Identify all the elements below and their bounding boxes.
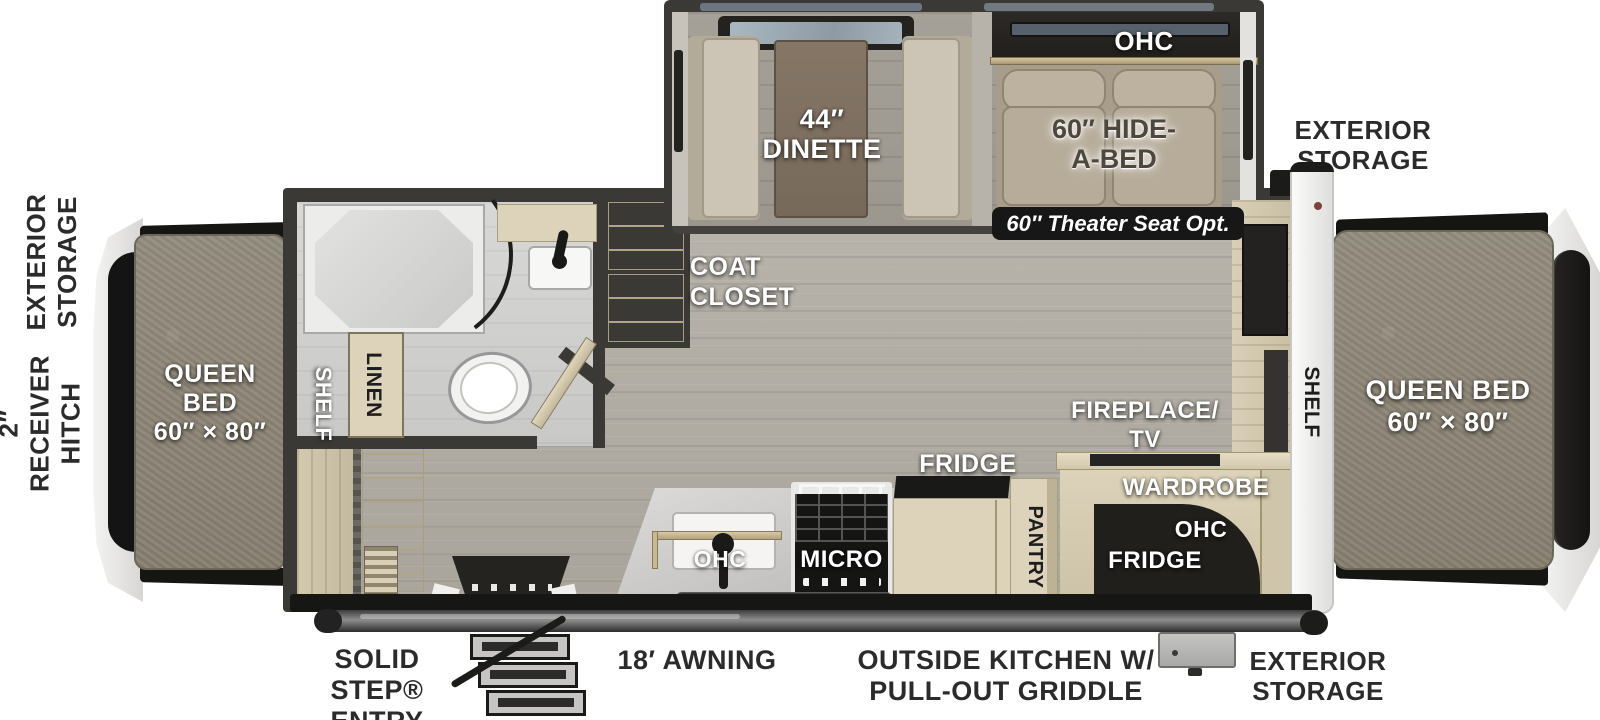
cooktop <box>795 494 888 542</box>
coat-closet-line1: COAT <box>690 252 810 282</box>
linen-text: LINEN <box>362 352 385 418</box>
rear-pillar-cap <box>1290 162 1334 172</box>
outside-kitchen-label: OUTSIDE KITCHEN W/ PULL-OUT GRIDDLE <box>856 645 1156 707</box>
bed-step-vent <box>364 546 398 594</box>
hide-a-bed-line2: A-BED <box>1024 144 1204 174</box>
hide-a-bed-line1: 60″ HIDE- <box>1024 114 1204 144</box>
underbody-storage-foot <box>1188 668 1202 676</box>
bedroom-fridge-text: FRIDGE <box>1108 547 1202 574</box>
bedroom-ohc-text: OHC <box>1175 516 1228 542</box>
slideout-divider-wall <box>972 12 992 226</box>
solid-step-line2: ENTRY <box>286 706 468 720</box>
rear-queen-bed-label: QUEEN BED 60″ × 80″ <box>1338 374 1558 438</box>
solid-step-line1: SOLID STEP® <box>286 644 468 706</box>
front-queen-bed-label: QUEEN BED 60″ × 80″ <box>134 360 286 447</box>
front-exterior-storage-line2: STORAGE <box>52 177 83 347</box>
range-knobs <box>803 578 881 586</box>
dinette-text: DINETTE <box>752 134 892 164</box>
kitchen-fridge-label: FRIDGE <box>908 450 1028 479</box>
awning-bar-cap-left <box>314 609 342 633</box>
fireplace-line1: FIREPLACE/ <box>1060 396 1230 425</box>
underbody-storage-screw <box>1172 650 1178 656</box>
sofa-back-cushion-left <box>1002 69 1106 111</box>
dinette-side-window <box>674 50 683 152</box>
wardrobe-counter-slab <box>1090 454 1220 466</box>
curtain-rod <box>990 57 1258 65</box>
rear-bed-line1: QUEEN BED <box>1338 374 1558 406</box>
fireplace-line2: TV <box>1060 425 1230 454</box>
dinette-size-text: 44″ <box>752 104 892 134</box>
solid-step-entry-label: SOLID STEP® ENTRY <box>286 644 468 720</box>
entry-step-dots <box>472 584 552 591</box>
coat-closet-label: COAT CLOSET <box>690 252 810 312</box>
dinette-bench-right-seat <box>902 38 960 218</box>
rear-top-storage-line1: EXTERIOR <box>1278 115 1448 145</box>
micro-label: MICRO <box>791 546 892 574</box>
bedroom-fridge-label: FRIDGE <box>1100 547 1210 575</box>
front-bed-line1: QUEEN <box>134 360 286 389</box>
front-bed-line3: 60″ × 80″ <box>134 418 286 447</box>
outside-kitchen-line1: OUTSIDE KITCHEN W/ <box>856 645 1156 676</box>
slideout-ohc-text: OHC <box>1114 26 1173 56</box>
entry-step-2-tread <box>490 670 566 679</box>
awning-roller-highlight <box>360 614 740 619</box>
hitch-line1: 2″ <box>0 349 25 499</box>
hitch-line3: HITCH <box>56 349 87 499</box>
pantry-label: PANTRY <box>1024 487 1046 607</box>
front-exterior-storage-line1: EXTERIOR <box>21 177 52 347</box>
rear-shelf-text: SHELF <box>1300 366 1323 437</box>
awning-text: 18′ AWNING <box>618 645 777 675</box>
fireplace-lower-slot <box>1264 350 1288 458</box>
theater-seat-badge: 60″ Theater Seat Opt. <box>992 207 1244 240</box>
sofa-back-cushion-right <box>1112 69 1216 111</box>
theater-seat-badge-text: 60″ Theater Seat Opt. <box>1006 211 1229 237</box>
slideout-right-window <box>1243 60 1253 160</box>
fireplace-tv-label: FIREPLACE/ TV <box>1060 396 1230 454</box>
hide-a-bed-label: 60″ HIDE- A-BED <box>1024 114 1204 174</box>
micro-text: MICRO <box>800 546 883 573</box>
slideout-top-window-right <box>984 3 1214 11</box>
bathroom-vanity <box>497 204 597 242</box>
wardrobe-text: WARDROBE <box>1123 474 1270 501</box>
rear-bottom-storage-line2: STORAGE <box>1233 676 1403 706</box>
front-shelf-text: SHELF <box>311 367 336 442</box>
front-exterior-storage-label: EXTERIOR STORAGE <box>21 177 83 347</box>
floorplan-canvas: EXTERIOR STORAGE 2″ RECEIVER HITCH QUEEN… <box>0 0 1600 720</box>
fridge-door-seam <box>995 500 997 596</box>
fireplace-tv-inset <box>1242 224 1288 336</box>
kitchen-ohc-rail-bracket <box>652 531 658 569</box>
receiver-hitch-label: 2″ RECEIVER HITCH <box>0 349 87 499</box>
outside-kitchen-line2: PULL-OUT GRIDDLE <box>856 676 1156 707</box>
front-bed-line2: BED <box>134 389 286 418</box>
kitchen-ohc-text: OHC <box>694 546 747 572</box>
fridge-top <box>894 476 1011 500</box>
rear-bed-line2: 60″ × 80″ <box>1338 406 1558 438</box>
linen-label: LINEN <box>363 335 385 435</box>
awning-bar-cap-right <box>1300 611 1328 635</box>
bathroom-faucet-head <box>552 254 567 269</box>
bedroom-ohc-label: OHC <box>1156 516 1246 543</box>
rear-shelf-label: SHELF <box>1301 352 1323 452</box>
rear-pillar-rivet <box>1314 202 1322 210</box>
dinette-label: 44″ DINETTE <box>752 104 892 164</box>
slideout-top-window-left <box>700 3 922 11</box>
hitch-line2: RECEIVER <box>25 349 56 499</box>
rear-bottom-exterior-storage-label: EXTERIOR STORAGE <box>1233 646 1403 706</box>
fridge-body <box>893 498 1011 598</box>
front-shelf-label: SHELF <box>314 349 336 459</box>
entry-step-3-tread <box>498 698 574 707</box>
coat-closet-line2: CLOSET <box>690 282 810 312</box>
awning-label: 18′ AWNING <box>597 645 797 676</box>
coat-closet-lower <box>608 274 684 342</box>
underbody-storage-box <box>1158 632 1236 668</box>
slideout-ohc-label: OHC <box>1094 26 1194 57</box>
kitchen-fridge-text: FRIDGE <box>919 450 1016 478</box>
rear-bottom-storage-line1: EXTERIOR <box>1233 646 1403 676</box>
kitchen-ohc-label: OHC <box>672 546 768 573</box>
front-cap-shadow-band <box>108 252 136 552</box>
wardrobe-label: WARDROBE <box>1106 474 1286 502</box>
pantry-side-shade <box>1047 479 1057 607</box>
pantry-text: PANTRY <box>1024 506 1046 589</box>
